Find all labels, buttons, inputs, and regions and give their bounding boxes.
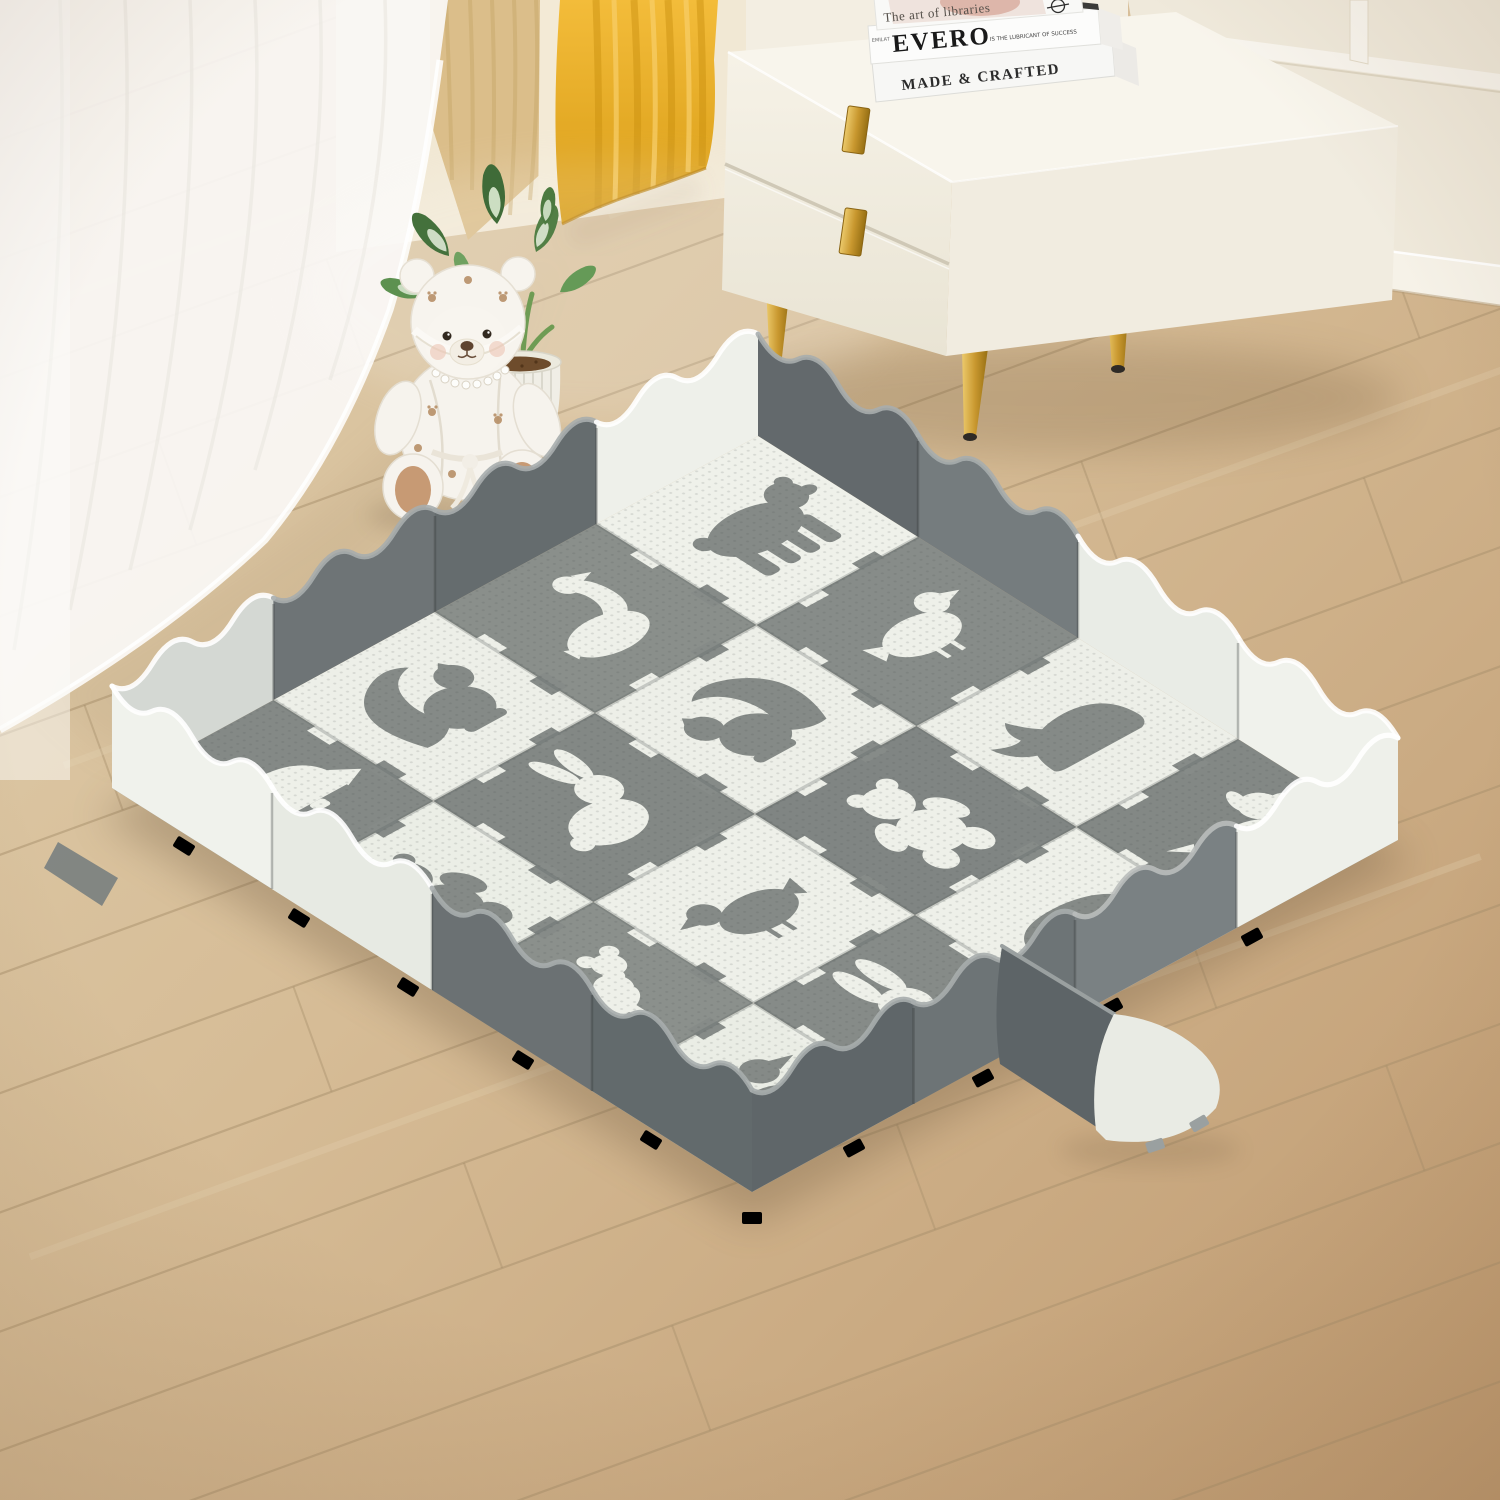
scene-canvas: The art of libraries EMILAT EVERO IS THE…	[0, 0, 1500, 1500]
vignette-overlay	[0, 0, 1500, 1500]
nursery-photo: The art of libraries EMILAT EVERO IS THE…	[0, 0, 1500, 1500]
